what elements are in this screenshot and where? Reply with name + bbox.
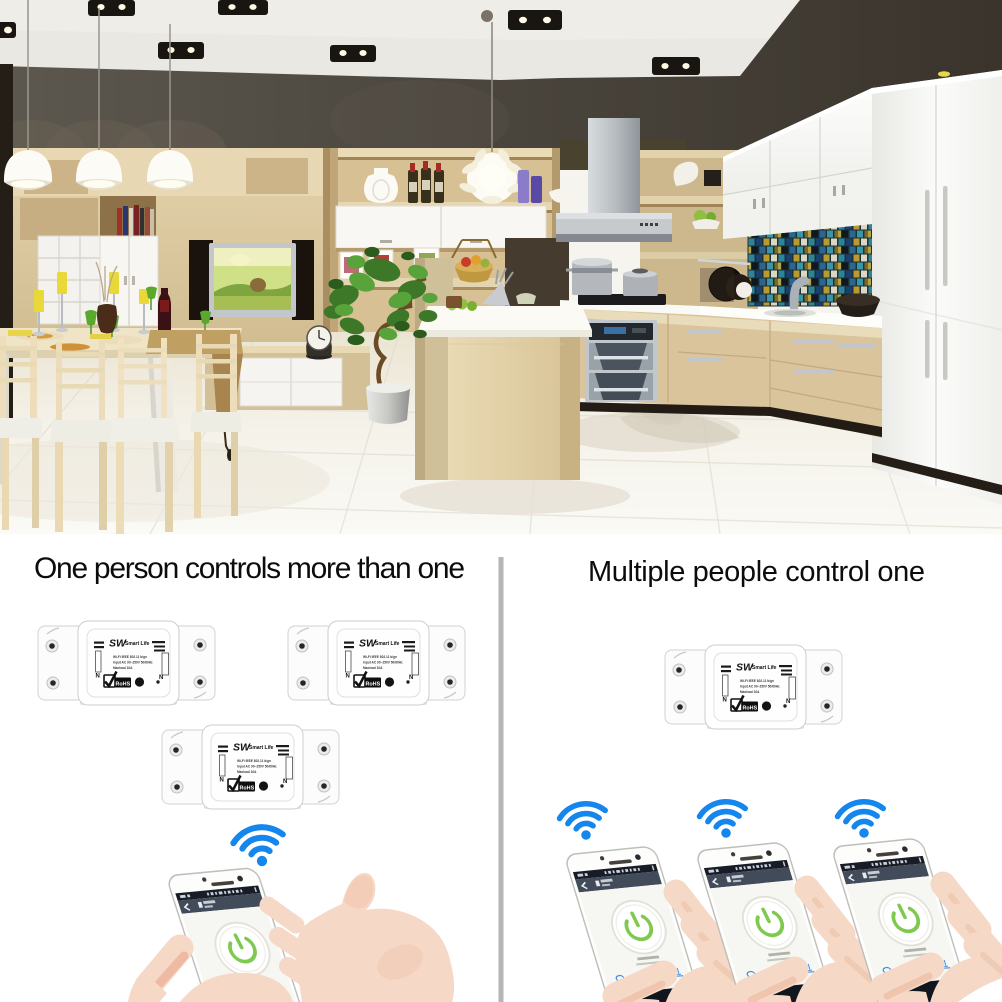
svg-text:Multiple people control one: Multiple people control one: [588, 556, 925, 588]
svg-text:One person controls more than: One person controls more than one: [34, 552, 465, 585]
